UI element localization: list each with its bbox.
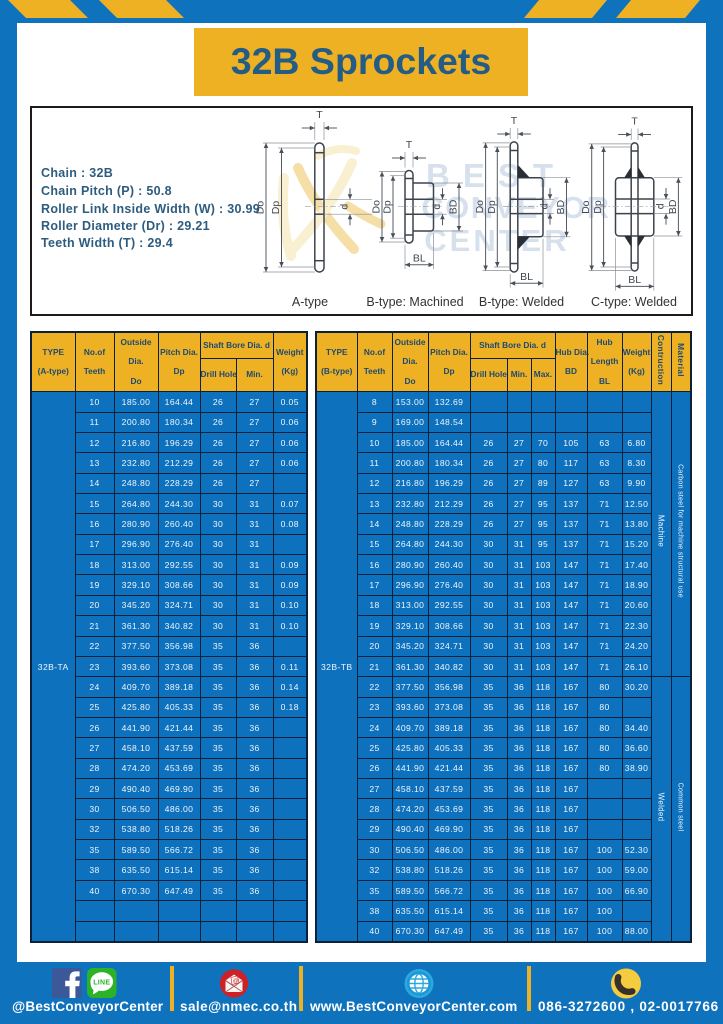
svg-text:Dp: Dp xyxy=(270,201,282,215)
svg-text:B-type: Welded: B-type: Welded xyxy=(479,295,564,309)
svg-text:BD: BD xyxy=(448,199,460,214)
svg-text:Roller Diameter (Dr) : 29.21: Roller Diameter (Dr) : 29.21 xyxy=(41,219,210,233)
svg-text:BL: BL xyxy=(520,271,533,283)
svg-text:B-type: Machined: B-type: Machined xyxy=(366,295,463,309)
svg-text:Dp: Dp xyxy=(486,200,498,214)
svg-text:BEST: BEST xyxy=(426,157,566,194)
svg-text:BL: BL xyxy=(413,252,426,264)
svg-text:Roller Link Inside Width (W): Roller Link Inside Width (W) : 30.99 xyxy=(41,202,260,216)
svg-text:T: T xyxy=(511,115,518,127)
svg-text:LINE: LINE xyxy=(93,979,110,986)
svg-text:d: d xyxy=(655,203,667,209)
svg-text:Teeth Width (T) : 29.4: Teeth Width (T) : 29.4 xyxy=(41,236,173,250)
svg-text:Dp: Dp xyxy=(592,200,604,214)
svg-text:T: T xyxy=(316,109,323,121)
svg-text:Dp: Dp xyxy=(382,200,394,214)
svg-text:BD: BD xyxy=(667,199,679,214)
svg-text:Chain Pitch (P) : 50.8: Chain Pitch (P) : 50.8 xyxy=(41,184,172,198)
svg-text:A-type: A-type xyxy=(292,295,328,309)
svg-text:d: d xyxy=(539,203,551,209)
svg-text:Do: Do xyxy=(474,200,486,214)
svg-text:BD: BD xyxy=(555,200,567,215)
svg-text:T: T xyxy=(631,116,638,128)
svg-text:BL: BL xyxy=(628,274,641,286)
svg-text:d: d xyxy=(431,204,443,210)
svg-text:T: T xyxy=(406,139,413,151)
svg-text:d: d xyxy=(339,204,351,210)
svg-text:Do: Do xyxy=(580,200,592,214)
svg-text:Chain : 32B: Chain : 32B xyxy=(41,166,113,180)
svg-text:C-type: Welded: C-type: Welded xyxy=(591,295,677,309)
svg-text:Do: Do xyxy=(255,201,267,215)
